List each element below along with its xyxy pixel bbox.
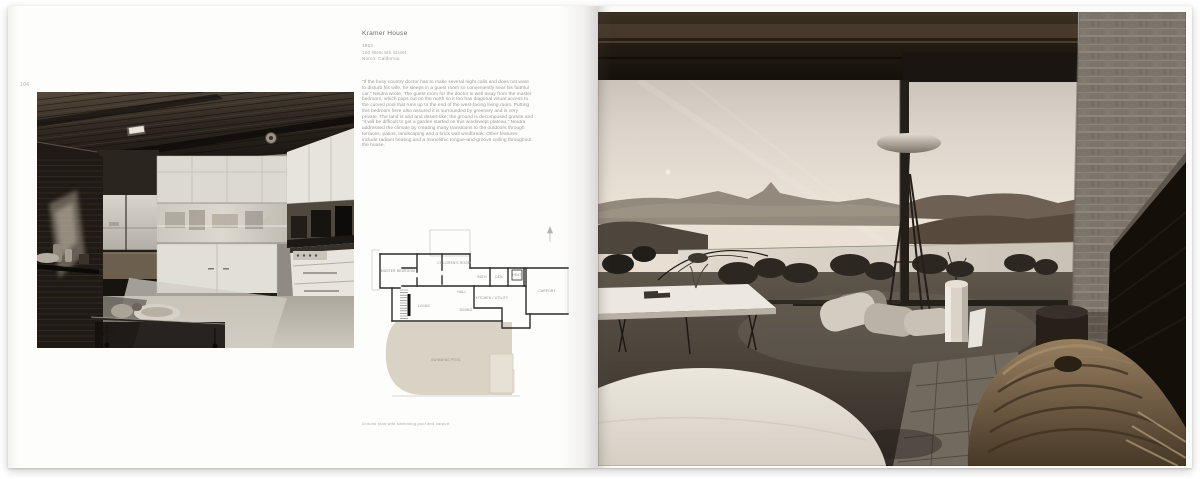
plan-caption: Ground plan with swimming pool and carpo… <box>362 421 450 426</box>
appliance-mixer <box>311 210 331 237</box>
appliance-tall <box>335 206 352 237</box>
plan-label-bath: BATH <box>477 275 487 279</box>
plan-label-living: LIVING <box>418 304 430 308</box>
plan-label-kitchen: KITCHEN / UTILITY <box>476 296 509 300</box>
plan-label-heat: HEAT <box>512 273 521 277</box>
open-book-spread: 104 <box>8 6 1192 468</box>
lamp-shade <box>877 133 941 153</box>
plan-label-pool: SWIMMING POOL <box>431 358 461 362</box>
screenshot-stage: 104 <box>0 0 1200 479</box>
pot <box>111 304 133 318</box>
moon <box>666 170 671 175</box>
kitchen-photo <box>37 92 354 348</box>
plan-pool-step <box>490 354 513 393</box>
clerestory-shadow <box>95 150 159 198</box>
left-page: 104 <box>8 6 598 468</box>
title-block: Kramer House 1953 100 West 8th Street No… <box>362 30 408 63</box>
plan-label-carport: CARPORT <box>538 289 555 293</box>
dark-pot <box>79 254 89 264</box>
bowl <box>180 303 208 316</box>
page-number: 104 <box>20 82 29 88</box>
plan-label-dining: DINING <box>460 308 473 312</box>
house-title: Kramer House <box>362 30 408 37</box>
floor-plan: MASTER BEDROOM CHILDREN'S ROOM BATH DEN … <box>362 218 570 415</box>
house-address: 100 West 8th Street <box>362 50 408 57</box>
center-cabinets <box>157 156 287 298</box>
plan-label-childrens-room: CHILDREN'S ROOM <box>437 261 471 265</box>
jug-small <box>65 249 72 262</box>
right-page <box>598 6 1192 468</box>
body-text: “If the busy country doctor has to make … <box>362 80 534 149</box>
north-arrow-icon <box>548 227 553 242</box>
plan-label-master-bedroom: MASTER BEDROOM <box>381 269 415 273</box>
house-city: Norco, California <box>362 56 408 63</box>
house-year: 1953 <box>362 43 408 50</box>
appliance-coffee <box>291 216 307 238</box>
cup <box>132 303 142 311</box>
plan-label-hall: HALL <box>458 290 467 294</box>
terrace-photo <box>598 12 1186 466</box>
plan-louvres <box>400 290 408 319</box>
paper-on-table <box>658 289 670 294</box>
roof-beam <box>598 12 1078 82</box>
plan-label-den: DEN <box>495 275 503 279</box>
